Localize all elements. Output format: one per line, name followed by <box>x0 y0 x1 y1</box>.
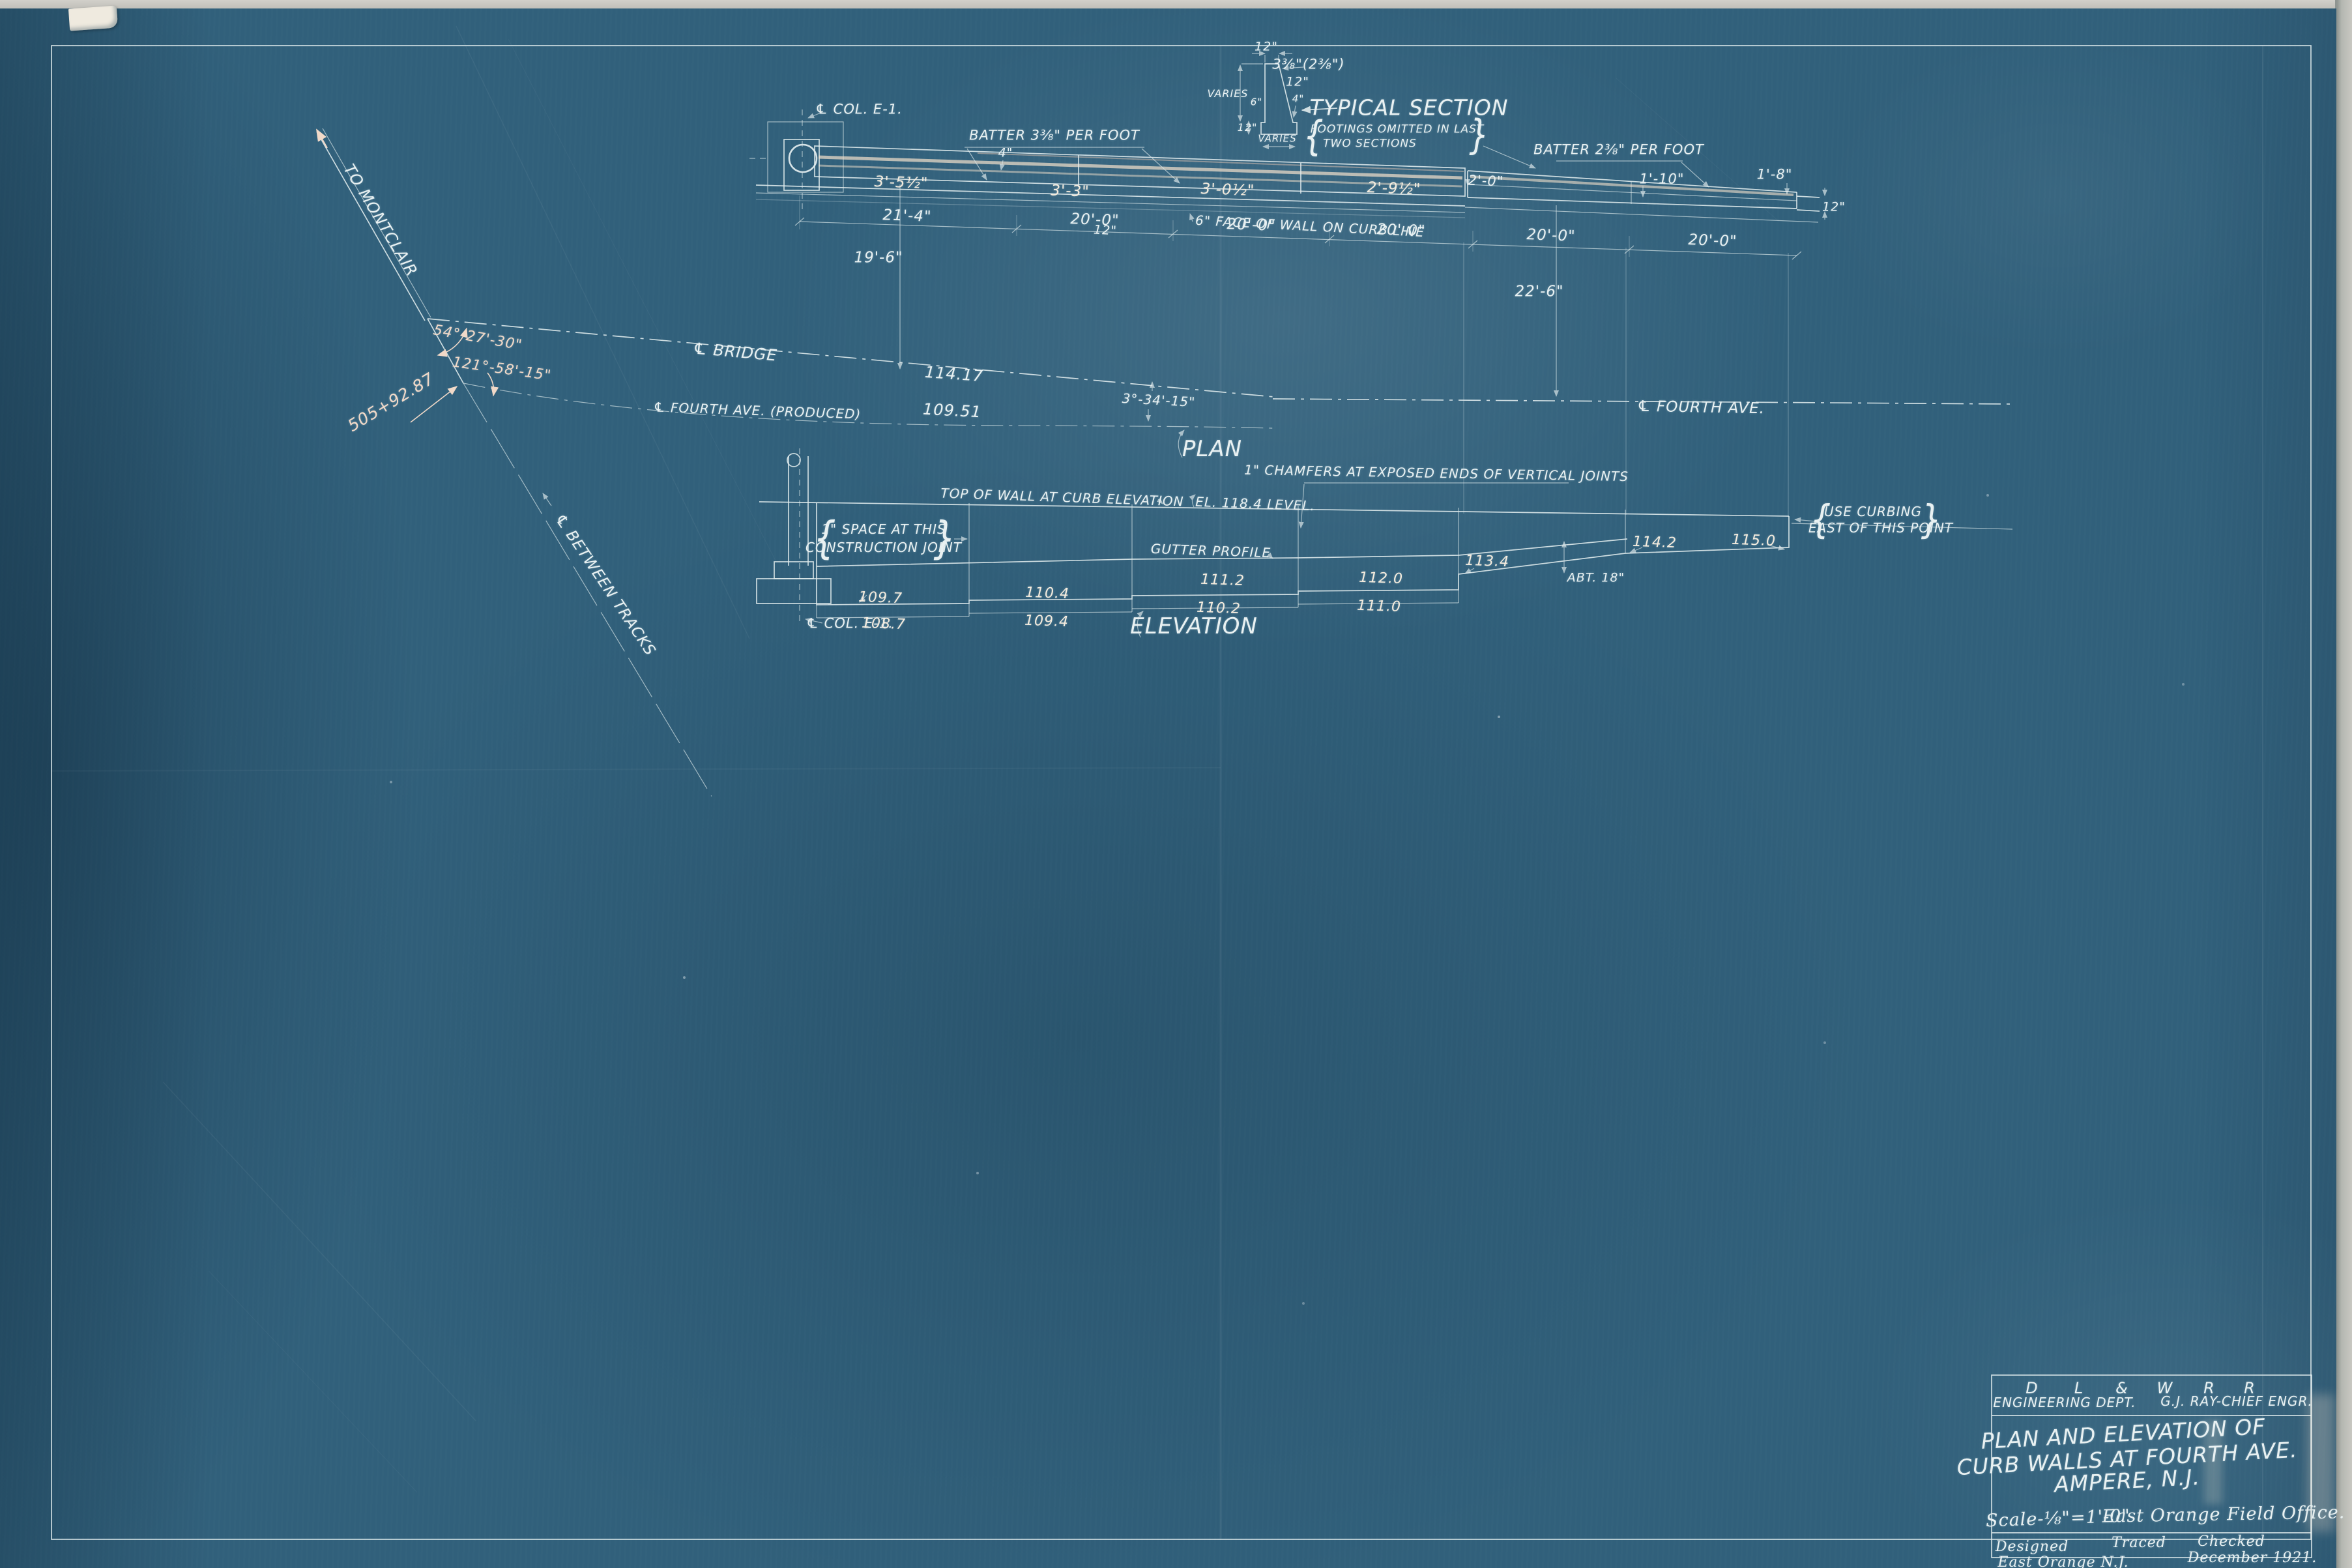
scanned-blueprint: 12" 3⅜"(2⅜") 12" VARIES 6" 4" 12" VARIES… <box>0 0 2352 1568</box>
elev-value-109-7: 109.7 <box>858 590 903 606</box>
elev-space-brace-open: { <box>813 516 836 560</box>
plan-span-21-4: 21'-4" <box>882 208 932 225</box>
plan-dim-12b: 12" <box>1822 201 1846 214</box>
plan-dim-2-9: 2'-9½" <box>1367 181 1421 197</box>
paper-creases <box>51 26 2263 1539</box>
ts-note-line2: TWO SECTIONS <box>1323 139 1417 150</box>
elevation-view-title: ELEVATION <box>1130 615 1258 637</box>
title-block-dept: ENGINEERING DEPT. <box>1993 1396 2136 1409</box>
elev-curbing-brace-open: { <box>1810 500 1832 539</box>
title-block-traced: Traced <box>2112 1536 2166 1550</box>
plan-batter-right: BATTER 2⅜" PER FOOT <box>1533 143 1704 157</box>
title-block-designed-place: East Orange N.J. <box>1997 1556 2128 1568</box>
elev-space-brace-close: } <box>933 516 956 560</box>
ts-varies-bottom: VARIES <box>1258 134 1296 144</box>
elev-value-111-2: 111.2 <box>1200 573 1245 588</box>
title-block-checked: Checked <box>2198 1535 2265 1549</box>
elev-gutter-note: GUTTER PROFILE <box>1151 542 1271 559</box>
ts-dim-12b: 12" <box>1238 123 1258 133</box>
centerlines-linework <box>317 128 2011 796</box>
plan-col-label: ℄ COL. E-1. <box>815 103 903 117</box>
title-block-engineer: G.J. RAY-CHIEF ENGR. <box>2160 1395 2312 1408</box>
plan-dim-3-0: 3'-0½" <box>1200 182 1255 199</box>
plan-dim-22-6: 22'-6" <box>1515 285 1563 300</box>
fourth-elevation-value: 109.51 <box>922 401 981 420</box>
railroad-letter-amp: & <box>2115 1380 2128 1396</box>
sheet-border <box>51 46 2311 1539</box>
plan-span-20-2: 20'-0" <box>1227 217 1276 234</box>
title-block-date: December 1921. <box>2188 1551 2317 1565</box>
elev-level-note: EL. 118.4 LEVEL. <box>1195 495 1315 512</box>
railroad-letter-l: L <box>2074 1380 2083 1396</box>
ts-dim-6: 6" <box>1251 98 1262 108</box>
title-block-office: East Orange Field Office. <box>2102 1503 2345 1526</box>
elev-value-110-2: 110.2 <box>1197 601 1241 617</box>
plan-span-20-5: 20'-0" <box>1688 233 1737 250</box>
elev-value-109-4: 109.4 <box>1024 614 1069 630</box>
ts-dim-batter: 3⅜"(2⅜") <box>1272 58 1344 72</box>
plan-dim-4: 4" <box>998 147 1013 160</box>
bridge-elevation-value: 114.17 <box>924 364 983 384</box>
ts-dim-4: 4" <box>1292 94 1304 104</box>
plan-span-20-3: 20'-0" <box>1376 222 1426 239</box>
title-block-designed: Designed <box>1996 1540 2069 1554</box>
ts-note-brace-close: } <box>1469 115 1490 155</box>
elev-value-112-0: 112.0 <box>1359 571 1404 587</box>
ts-note-line1: FOOTINGS OMITTED IN LAST <box>1311 124 1485 136</box>
angle-mid-value: 3°-34'-15" <box>1122 392 1196 409</box>
plan-view-title: PLAN <box>1182 438 1242 460</box>
plan-dim-3-5: 3'-5½" <box>874 175 929 192</box>
centerline-fourth-label: ℄ FOURTH AVE. <box>1637 399 1765 416</box>
plan-span-20-4: 20'-0" <box>1526 227 1576 244</box>
plan-dim-1-8: 1'-8" <box>1757 168 1793 182</box>
plan-dim-3-3: 3'-3" <box>1051 183 1090 199</box>
ts-dim-top: 12" <box>1255 41 1278 53</box>
plan-dim-19-6: 19'-6" <box>854 251 903 266</box>
plan-dim-2-0: 2'-0" <box>1468 174 1503 189</box>
plan-span-20-1: 20'-0" <box>1070 212 1120 229</box>
elev-value-110-4: 110.4 <box>1025 586 1070 602</box>
elev-space-note-line1: 1" SPACE AT THIS <box>821 523 946 536</box>
elev-value-114-2: 114.2 <box>1633 535 1677 551</box>
plan-batter-left: BATTER 3⅜" PER FOOT <box>969 129 1140 143</box>
elev-value-113-4: 113.4 <box>1465 554 1510 570</box>
drawing-linework <box>0 0 2352 1568</box>
ts-dim-12: 12" <box>1286 76 1309 89</box>
elev-curbing-note-line1: USE CURBING <box>1824 505 1922 518</box>
ts-note-brace-open: { <box>1303 116 1324 156</box>
ts-varies-left: VARIES <box>1208 89 1249 99</box>
elev-value-108-7: 108.7 <box>862 617 907 632</box>
elev-abt-note: ABT. 18" <box>1567 572 1625 585</box>
elev-curbing-brace-close: } <box>1921 500 1943 539</box>
railroad-letter-d: D <box>2025 1380 2038 1396</box>
plan-dim-1-10: 1'-10" <box>1639 173 1684 186</box>
elev-value-115-0: 115.0 <box>1732 533 1777 549</box>
elev-value-111-0: 111.0 <box>1357 599 1402 615</box>
